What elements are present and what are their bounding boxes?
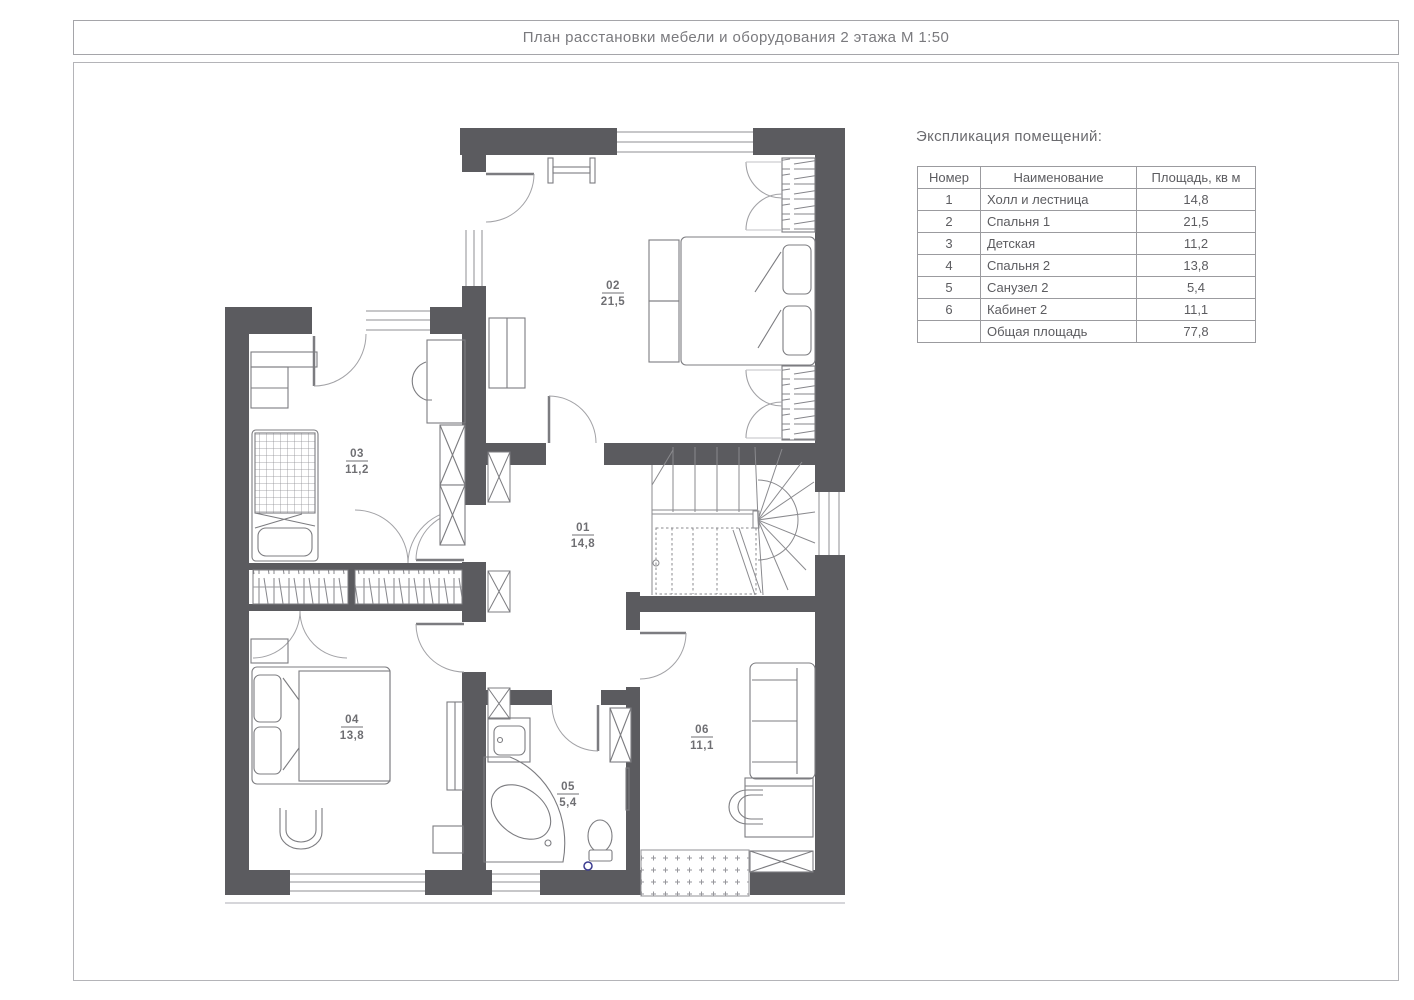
desk-chair-icon <box>729 790 763 824</box>
balcony-tile-area <box>641 850 749 896</box>
floor-drain-icon <box>584 862 592 870</box>
closet-left-door-arc-1 <box>253 611 300 658</box>
door-arc-hall-bath <box>552 705 598 751</box>
room-label-bedroom1: 02 21,5 <box>601 280 625 308</box>
svg-text:13,8: 13,8 <box>340 730 364 742</box>
window-nursery-top <box>366 311 430 330</box>
hall-closets <box>253 570 462 604</box>
wardrobe-top-icon <box>746 158 815 232</box>
bath-cabinet-icon <box>610 708 631 762</box>
svg-text:14,8: 14,8 <box>571 538 595 550</box>
shaft-box-1 <box>488 452 510 502</box>
room-label-office: 06 11,1 <box>690 724 714 752</box>
table-row: 6 Кабинет 2 11,1 <box>918 299 1256 321</box>
svg-text:05: 05 <box>561 781 575 793</box>
window-stairs-right <box>819 492 839 555</box>
window-terrace-wall <box>466 230 482 286</box>
table-row: 1 Холл и лестница 14,8 <box>918 189 1256 211</box>
svg-text:01: 01 <box>576 522 590 534</box>
column-header-number: Номер <box>918 167 981 189</box>
column-header-area: Площадь, кв м <box>1137 167 1256 189</box>
stair-flight-below <box>656 528 756 594</box>
shaft-boxes <box>488 452 510 719</box>
window-bedroom1-top <box>617 132 753 152</box>
svg-text:21,5: 21,5 <box>601 296 625 308</box>
clothes-rack-icon <box>548 158 595 183</box>
winder-treads <box>755 447 815 595</box>
drawing-sheet: План расстановки мебели и оборудования 2… <box>0 0 1414 1000</box>
room-label-bath: 05 5,4 <box>557 781 579 809</box>
room-label-hall: 01 14,8 <box>571 522 595 550</box>
explication-table: Номер Наименование Площадь, кв м 1 Холл … <box>917 166 1256 343</box>
svg-text:02: 02 <box>606 280 620 292</box>
desk-icon <box>251 352 317 408</box>
wardrobe-icon <box>440 425 465 545</box>
sink-icon <box>488 718 530 762</box>
sofa-icon <box>750 663 815 779</box>
bedroom2-furniture <box>251 639 463 853</box>
office-furniture <box>641 663 815 896</box>
desk-icon <box>745 778 813 837</box>
winder-guide-arc <box>758 480 798 560</box>
nightstand-icon <box>251 639 288 663</box>
svg-text:04: 04 <box>345 714 359 726</box>
svg-text:11,1: 11,1 <box>690 740 714 752</box>
explication-heading: Экспликация помещений: <box>916 128 1102 145</box>
bedroom1-furniture <box>489 158 815 440</box>
closet-left-door-arc-2 <box>300 611 347 658</box>
door-arc-hall-office <box>640 633 686 679</box>
room-label-nursery: 03 11,2 <box>345 448 369 476</box>
window-bedroom2-bottom <box>290 874 425 891</box>
column-header-name: Наименование <box>981 167 1137 189</box>
toilet-icon <box>588 820 612 861</box>
door-arc-hall-bedroom1 <box>549 396 596 443</box>
radiator-icon <box>750 851 813 872</box>
table-row-total: Общая площадь 77,8 <box>918 321 1256 343</box>
table-row: 4 Спальня 2 13,8 <box>918 255 1256 277</box>
table-row: 2 Спальня 1 21,5 <box>918 211 1256 233</box>
floor-plan: 01 14,8 02 21,5 03 11,2 04 13,8 05 <box>0 0 1414 1000</box>
table-header-row: Номер Наименование Площадь, кв м <box>918 167 1256 189</box>
shaft-box-3 <box>488 688 510 719</box>
table-row: 5 Санузел 2 5,4 <box>918 277 1256 299</box>
svg-text:06: 06 <box>695 724 709 736</box>
table-row: 3 Детская 11,2 <box>918 233 1256 255</box>
svg-text:03: 03 <box>350 448 364 460</box>
svg-text:11,2: 11,2 <box>345 464 369 476</box>
bathtub-icon <box>481 757 565 862</box>
door-arc-hall-bedroom2 <box>416 624 464 672</box>
wardrobe-bottom-icon <box>746 366 815 440</box>
bathroom-furniture <box>481 708 631 870</box>
staircase <box>652 447 815 595</box>
svg-text:5,4: 5,4 <box>559 797 577 809</box>
door-arc-terrace-nursery <box>314 334 366 386</box>
chair-icon <box>280 808 322 849</box>
single-bed-icon <box>252 430 318 561</box>
desk-chair-icon <box>412 340 465 423</box>
shelf-icon <box>447 702 463 790</box>
room-labels: 01 14,8 02 21,5 03 11,2 04 13,8 05 <box>340 280 714 809</box>
closet-right-door-arc-1 <box>355 510 408 563</box>
dresser-icon <box>489 318 525 388</box>
room-label-bedroom2: 04 13,8 <box>340 714 364 742</box>
shaft-box-2 <box>488 571 510 612</box>
bedside-table-icon <box>433 826 463 853</box>
double-bed-icon <box>252 667 390 784</box>
door-arc-terrace-bedroom1 <box>486 174 534 222</box>
window-bath-bottom <box>492 874 540 891</box>
double-bed-icon <box>649 237 815 365</box>
